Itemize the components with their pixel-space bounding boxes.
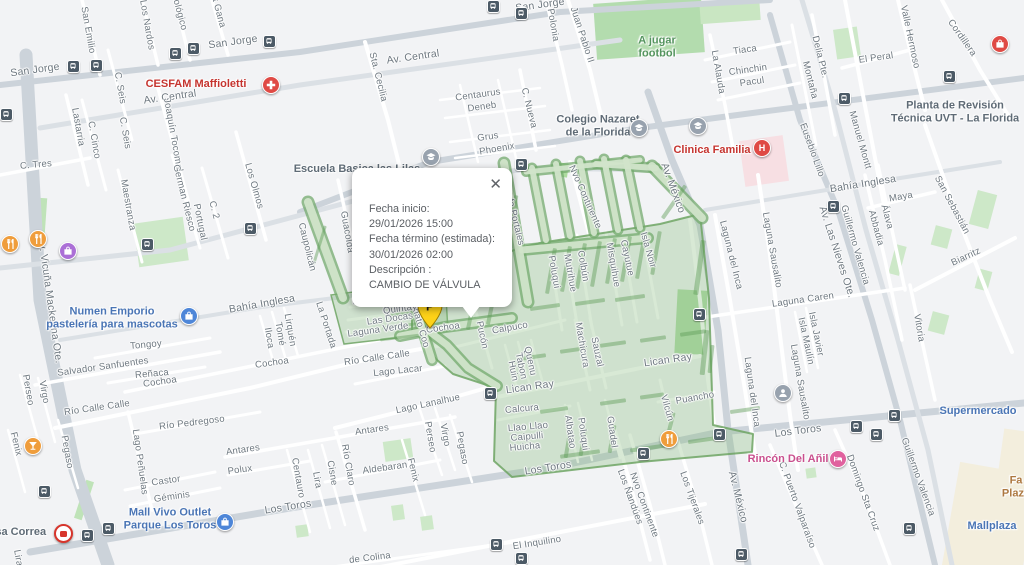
svg-text:H: H	[759, 143, 766, 153]
map-canvas[interactable]: San JorgeSan JorgeSan JorgeAv. CentralAv…	[0, 0, 1024, 565]
lodging-icon[interactable]	[829, 450, 847, 468]
bus-stop-icon[interactable]	[67, 60, 80, 73]
bus-stop-icon[interactable]	[169, 47, 182, 60]
bus-stop-icon[interactable]	[90, 59, 103, 72]
shopping-icon[interactable]	[216, 513, 234, 531]
popup-line-fecha-inicio-value: 29/01/2026 15:00	[369, 217, 500, 232]
poi-label[interactable]: CESFAM Maffioletti	[146, 78, 247, 91]
bus-stop-icon[interactable]	[903, 522, 916, 535]
bus-stop-icon[interactable]	[870, 428, 883, 441]
bus-stop-icon[interactable]	[735, 548, 748, 561]
poi-label[interactable]: Supermercado	[939, 405, 1016, 418]
bus-stop-icon[interactable]	[0, 108, 13, 121]
bus-stop-icon[interactable]	[263, 35, 276, 48]
school-icon[interactable]	[689, 117, 707, 135]
close-icon[interactable]: ✕	[489, 177, 502, 192]
outage-info-popup: ✕ Fecha inicio: 29/01/2026 15:00 Fecha t…	[352, 168, 512, 307]
poi-label[interactable]: Elisa Correa	[0, 526, 46, 539]
bus-stop-icon[interactable]	[141, 238, 154, 251]
poi-label[interactable]: Mall Vivo OutletParque Los Toros	[124, 507, 217, 532]
bus-stop-icon[interactable]	[838, 92, 851, 105]
poi-label[interactable]: Clinica Familia	[673, 144, 750, 157]
bus-stop-icon[interactable]	[888, 409, 901, 422]
bus-stop-icon[interactable]	[693, 308, 706, 321]
bus-stop-icon[interactable]	[81, 529, 94, 542]
bus-stop-icon[interactable]	[515, 158, 528, 171]
bus-stop-icon[interactable]	[244, 222, 257, 235]
restaurant-icon[interactable]	[660, 430, 678, 448]
popup-line-fecha-inicio-label: Fecha inicio:	[369, 202, 500, 217]
bus-stop-icon[interactable]	[713, 428, 726, 441]
bus-stop-icon[interactable]	[515, 552, 528, 565]
restaurant-icon[interactable]	[1, 235, 19, 253]
popup-line-fecha-termino-value: 30/01/2026 02:00	[369, 248, 500, 263]
restaurant-icon[interactable]	[29, 230, 47, 248]
metro-station-icon[interactable]	[54, 524, 73, 543]
popup-tail	[462, 306, 480, 318]
poi-label[interactable]: Colegio Nazaretde la Florida	[556, 114, 639, 139]
poi-label[interactable]: FaPlaza	[1002, 475, 1024, 500]
bus-stop-icon[interactable]	[637, 447, 650, 460]
popup-line-descripcion-value: CAMBIO DE VÁLVULA	[369, 278, 500, 293]
bus-stop-icon[interactable]	[943, 70, 956, 83]
person-icon[interactable]	[774, 384, 792, 402]
school-icon[interactable]	[422, 148, 440, 166]
popup-line-fecha-termino-label: Fecha término (estimada):	[369, 232, 500, 247]
bus-stop-icon[interactable]	[38, 485, 51, 498]
bus-stop-icon[interactable]	[850, 420, 863, 433]
poi-label[interactable]: Rincón Del Añil	[748, 453, 829, 466]
bus-stop-icon[interactable]	[490, 538, 503, 551]
hospital-icon[interactable]: H	[753, 139, 771, 157]
cocktail-icon[interactable]	[24, 437, 42, 455]
bus-stop-icon[interactable]	[102, 522, 115, 535]
shopping-icon[interactable]	[180, 307, 198, 325]
poi-label[interactable]: A jugarfootbol	[638, 35, 676, 60]
poi-label[interactable]: Mallplaza	[968, 520, 1017, 533]
store-icon[interactable]	[991, 35, 1009, 53]
bus-stop-icon[interactable]	[187, 42, 200, 55]
popup-line-descripcion-label: Descripción :	[369, 263, 500, 278]
bus-stop-icon[interactable]	[515, 7, 528, 20]
store-icon[interactable]	[59, 242, 77, 260]
school-icon[interactable]	[630, 119, 648, 137]
bus-stop-icon[interactable]	[487, 0, 500, 13]
poi-label[interactable]: Planta de RevisiónTécnica UVT - La Flori…	[891, 100, 1019, 125]
bus-stop-icon[interactable]	[484, 387, 497, 400]
popup-body: Fecha inicio: 29/01/2026 15:00 Fecha tér…	[352, 168, 512, 307]
medical-icon[interactable]	[262, 76, 280, 94]
bus-stop-icon[interactable]	[827, 200, 840, 213]
poi-label[interactable]: Numen Emporiopastelería para mascotas	[46, 306, 177, 331]
